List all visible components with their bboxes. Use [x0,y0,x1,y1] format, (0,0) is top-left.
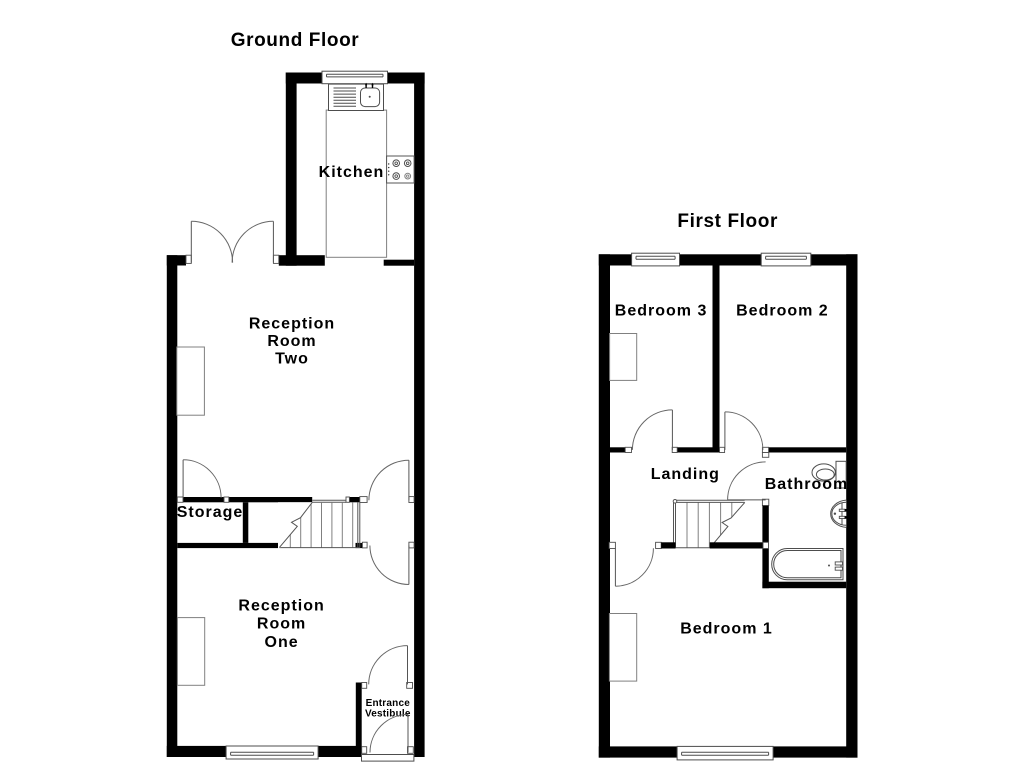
svg-text:Two: Two [275,351,309,368]
svg-text:Room: Room [267,333,316,350]
svg-text:Bedroom 1: Bedroom 1 [680,620,773,637]
svg-text:Bedroom 2: Bedroom 2 [736,302,829,319]
svg-text:First Floor: First Floor [677,211,778,232]
svg-text:Reception: Reception [238,597,324,614]
svg-text:Room: Room [257,616,306,633]
svg-text:Entrance: Entrance [366,698,411,709]
svg-text:Kitchen: Kitchen [319,164,385,181]
svg-text:Bedroom 3: Bedroom 3 [615,302,708,319]
svg-text:One: One [265,634,299,651]
svg-text:Ground Floor: Ground Floor [231,30,360,51]
svg-text:Reception: Reception [249,315,335,332]
svg-text:Bathroom: Bathroom [765,476,849,493]
svg-text:Vestibule: Vestibule [365,708,411,719]
svg-text:Landing: Landing [651,466,720,483]
svg-text:Storage: Storage [177,504,244,521]
